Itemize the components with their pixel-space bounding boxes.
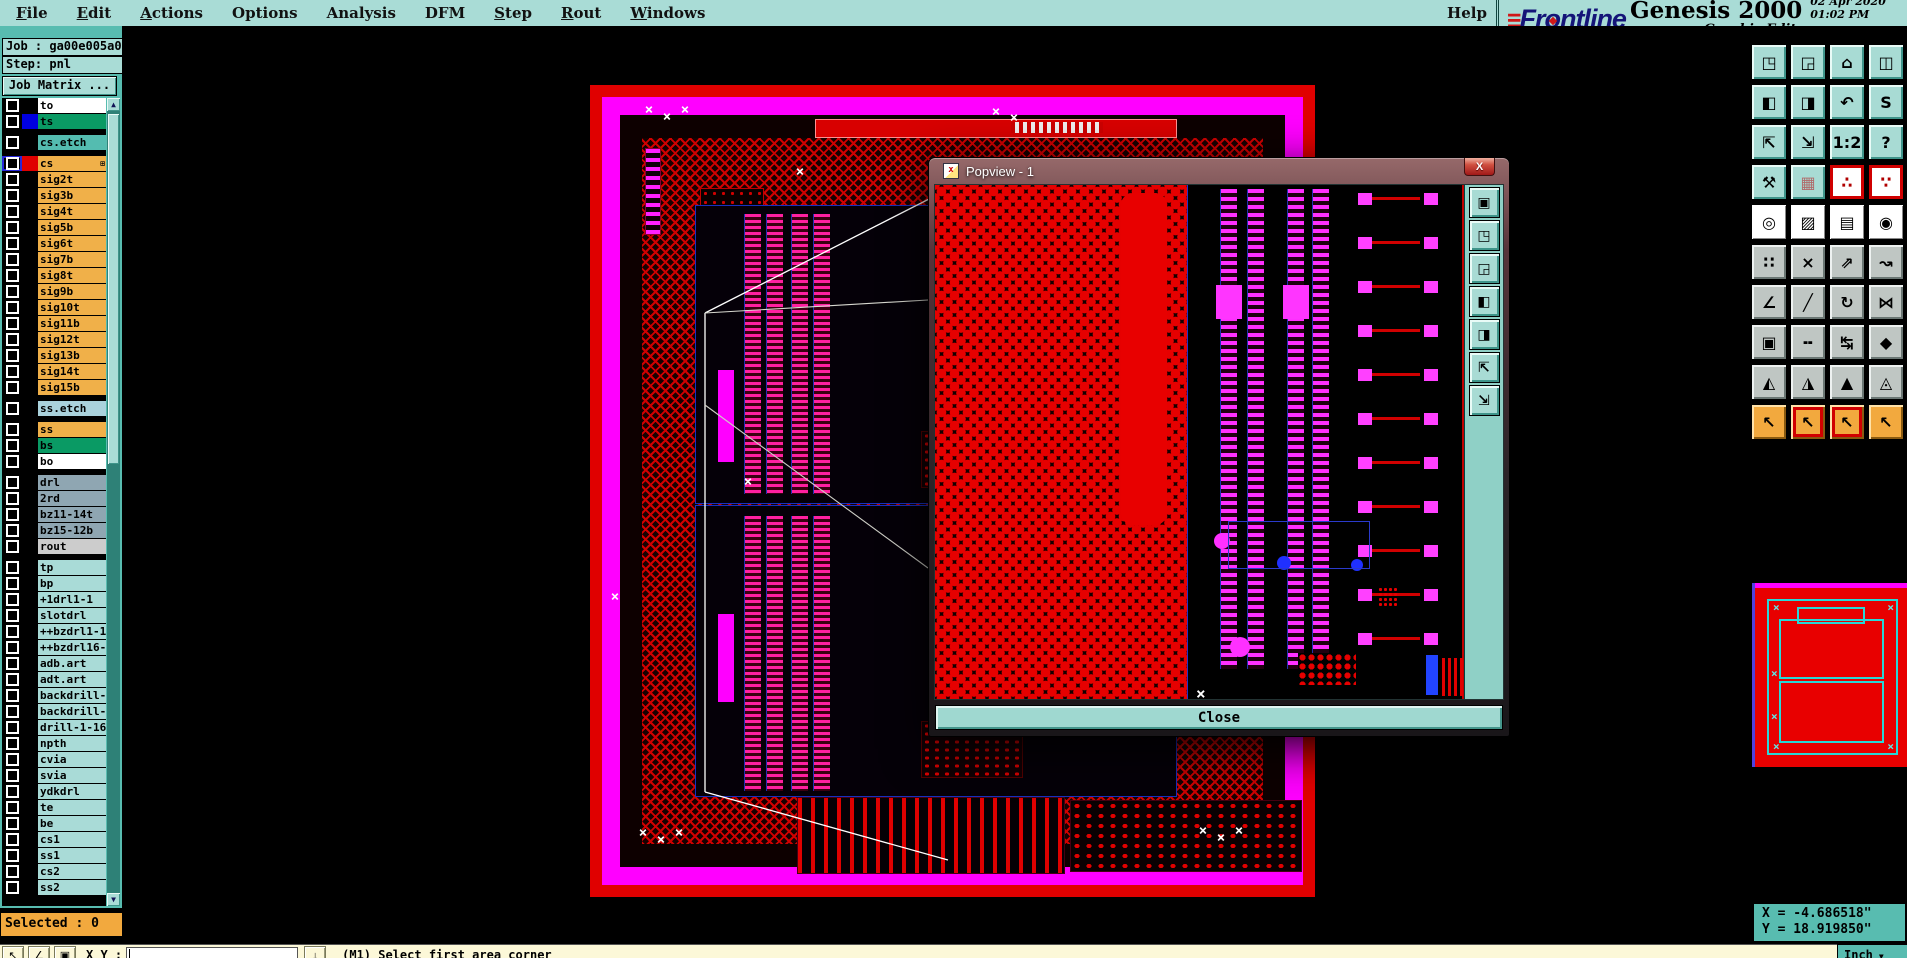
layer-visibility-checkbox[interactable] xyxy=(2,156,22,171)
layer-name-label[interactable]: cs.etch xyxy=(38,135,106,150)
coord-entry-button[interactable]: ↓ xyxy=(304,946,326,958)
layer-row[interactable]: sig13b xyxy=(2,348,106,363)
layer-name-label[interactable]: npth xyxy=(38,736,106,751)
layer-name-label[interactable]: sig10t xyxy=(38,300,106,315)
net-highlight-alt-button[interactable]: ∵ xyxy=(1868,164,1904,200)
layer-visibility-checkbox[interactable] xyxy=(2,864,22,879)
layer-visibility-checkbox[interactable] xyxy=(2,800,22,815)
layer-visibility-checkbox[interactable] xyxy=(2,832,22,847)
checkbox-icon xyxy=(6,333,19,346)
layer-color-swatch[interactable] xyxy=(22,454,38,469)
layer-visibility-checkbox[interactable] xyxy=(2,114,22,129)
layer-row[interactable]: sig4t xyxy=(2,204,106,219)
layer-row[interactable]: cs2 xyxy=(2,864,106,879)
layer-color-swatch[interactable] xyxy=(22,252,38,267)
layer-visibility-checkbox[interactable] xyxy=(2,507,22,522)
checkbox-icon xyxy=(6,237,19,250)
layer-color-swatch[interactable] xyxy=(22,704,38,719)
layer-name-label[interactable]: be xyxy=(38,816,106,831)
cursor-coordinates: X = -4.686518" Y = 18.919850" xyxy=(1752,904,1905,941)
layer-name-label[interactable]: ss1 xyxy=(38,848,106,863)
net-highlight-button[interactable]: ∴ xyxy=(1829,164,1865,200)
checkbox-icon xyxy=(6,476,19,489)
layer-panel: to ts cs.etch xyxy=(0,96,122,908)
layer-color-swatch[interactable] xyxy=(22,832,38,847)
layer-color-swatch[interactable] xyxy=(22,364,38,379)
layer-name-label[interactable]: backdrill-16 xyxy=(38,704,106,719)
layer-color-swatch[interactable] xyxy=(22,348,38,363)
checkbox-icon xyxy=(6,508,19,521)
layer-name-label[interactable]: te xyxy=(38,800,106,815)
layer-name-label[interactable]: sig3b xyxy=(38,188,106,203)
overview-map[interactable] xyxy=(1752,583,1907,767)
layer-name-label[interactable]: cs⊞ xyxy=(38,156,106,171)
layer-visibility-checkbox[interactable] xyxy=(2,624,22,639)
layer-name-label[interactable]: backdrill-1-1 xyxy=(38,688,106,703)
fiducial-cross-mark xyxy=(681,102,689,118)
fiducial-cross-mark xyxy=(645,102,653,118)
pan-right-button[interactable]: ◨ xyxy=(1790,84,1826,120)
select-symbol-button[interactable]: ◎ xyxy=(1751,204,1787,240)
layer-color-swatch[interactable] xyxy=(22,752,38,767)
layer-row[interactable]: cs1 xyxy=(2,832,106,847)
layer-visibility-checkbox[interactable] xyxy=(2,401,22,416)
layer-name-label[interactable]: bz15-12b xyxy=(38,523,106,538)
menu-item[interactable]: Rout xyxy=(561,4,601,22)
delete-object-button[interactable]: × xyxy=(1790,244,1826,280)
zoom-in-button[interactable]: ◳ xyxy=(1751,44,1787,80)
grid-toggle-button[interactable]: ▦ xyxy=(1790,164,1826,200)
layer-name-label[interactable]: sig13b xyxy=(38,348,106,363)
layer-name-label[interactable]: bs xyxy=(38,438,106,453)
layer-name-label[interactable]: ydkdrl xyxy=(38,784,106,799)
layer-row[interactable]: ++bzdrl1-13 xyxy=(2,624,106,639)
checkbox-icon xyxy=(6,492,19,505)
scroll-thumb[interactable] xyxy=(108,114,119,464)
layer-row[interactable]: bz15-12b xyxy=(2,523,106,538)
copy-pad-button[interactable]: ▣ xyxy=(1751,324,1787,360)
fiducial-cross-mark xyxy=(796,164,804,180)
popview-dot-grid-region xyxy=(935,185,1187,699)
ruler-button[interactable]: ▤ xyxy=(1829,204,1865,240)
layer-row[interactable]: sig5b xyxy=(2,220,106,235)
layer-row[interactable]: sig6t xyxy=(2,236,106,251)
layer-name-label[interactable]: rout xyxy=(38,539,106,554)
map-board-outline xyxy=(1779,619,1884,679)
layer-row[interactable]: rout xyxy=(2,539,106,554)
layer-color-swatch[interactable] xyxy=(22,491,38,506)
zoom-out-button[interactable]: ◲ xyxy=(1790,44,1826,80)
layer-color-swatch[interactable] xyxy=(22,784,38,799)
window-mode-button[interactable]: ▣ xyxy=(54,946,76,958)
query-button[interactable]: ? xyxy=(1868,124,1904,160)
layer-row[interactable]: be xyxy=(2,816,106,831)
layer-visibility-checkbox[interactable] xyxy=(2,784,22,799)
layer-color-swatch[interactable] xyxy=(22,507,38,522)
layer-row[interactable]: to xyxy=(2,98,106,113)
layer-name-label[interactable]: ++bzdrl16-13 xyxy=(38,640,106,655)
layer-visibility-checkbox[interactable] xyxy=(2,332,22,347)
snap-point-button[interactable]: ↝ xyxy=(1868,244,1904,280)
layer-row[interactable]: adb.art xyxy=(2,656,106,671)
layer-row[interactable]: 2rd xyxy=(2,491,106,506)
popview-close-icon[interactable]: X xyxy=(1464,158,1495,176)
layer-name-label[interactable]: sig14t xyxy=(38,364,106,379)
break-line-button[interactable]: ╍ xyxy=(1790,324,1826,360)
previous-view-button[interactable]: ↶ xyxy=(1829,84,1865,120)
checkbox-icon xyxy=(6,609,19,622)
slope-line-button[interactable]: ╱ xyxy=(1790,284,1826,320)
layer-visibility-checkbox[interactable] xyxy=(2,539,22,554)
layer-color-swatch[interactable] xyxy=(22,523,38,538)
layer-row[interactable]: sig10t xyxy=(2,300,106,315)
step-label: Step: pnl xyxy=(2,56,124,74)
layer-row[interactable]: bp xyxy=(2,576,106,591)
layer-row[interactable]: backdrill-1-1 xyxy=(2,688,106,703)
layer-name-label[interactable]: +1drl1-1 xyxy=(38,592,106,607)
layer-color-swatch[interactable] xyxy=(22,592,38,607)
layer-name-label[interactable]: sig9b xyxy=(38,284,106,299)
layer-visibility-checkbox[interactable] xyxy=(2,720,22,735)
select-pad-button[interactable]: ◉ xyxy=(1868,204,1904,240)
menu-item[interactable]: Edit xyxy=(77,4,112,22)
layer-color-swatch[interactable] xyxy=(22,768,38,783)
layer-color-swatch[interactable] xyxy=(22,624,38,639)
layer-name-label[interactable]: drill-1-16 xyxy=(38,720,106,735)
layer-name-label[interactable]: bp xyxy=(38,576,106,591)
checkbox-icon xyxy=(6,136,19,149)
popview-title-bar[interactable]: x Popview - 1 xyxy=(929,158,1509,184)
layer-row[interactable]: ++bzdrl16-13 xyxy=(2,640,106,655)
layer-color-swatch[interactable] xyxy=(22,114,38,129)
layer-color-swatch[interactable] xyxy=(22,98,38,113)
checkbox-icon xyxy=(6,524,19,537)
layer-row[interactable]: ss.etch xyxy=(2,401,106,416)
menu-item[interactable]: Analysis xyxy=(327,4,396,22)
layer-visibility-checkbox[interactable] xyxy=(2,454,22,469)
layer-row[interactable]: slotdrl xyxy=(2,608,106,623)
layer-name-label[interactable]: sig12t xyxy=(38,332,106,347)
pan-left-button[interactable]: ◧ xyxy=(1751,84,1787,120)
scroll-down-arrow[interactable]: ▼ xyxy=(107,893,120,906)
layer-visibility-checkbox[interactable] xyxy=(2,491,22,506)
layer-row[interactable]: cs.etch xyxy=(2,135,106,150)
layer-color-swatch[interactable] xyxy=(22,172,38,187)
layer-name-label[interactable]: tp xyxy=(38,560,106,575)
layer-row[interactable]: sig14t xyxy=(2,364,106,379)
frame-select-button[interactable]: ↖ xyxy=(1790,404,1826,440)
layer-color-swatch[interactable] xyxy=(22,816,38,831)
pcb-bottom-components xyxy=(797,797,1065,874)
selected-count-label: Selected : 0 xyxy=(0,912,126,937)
layer-name-label[interactable]: ++bzdrl1-13 xyxy=(38,624,106,639)
split-view-xy-button[interactable]: ◫ xyxy=(1868,44,1904,80)
layer-name-label[interactable]: sig11b xyxy=(38,316,106,331)
triangle-open-button[interactable]: ◭ xyxy=(1751,364,1787,400)
layer-color-swatch[interactable] xyxy=(22,135,38,150)
layer-color-swatch[interactable] xyxy=(22,156,38,171)
popview-zoom-extents-button[interactable]: ⇱ xyxy=(1469,352,1500,383)
layer-color-swatch[interactable] xyxy=(22,848,38,863)
popview-pan-right-button[interactable]: ◨ xyxy=(1469,319,1500,350)
layer-row[interactable]: cs⊞ xyxy=(2,156,106,171)
layer-color-swatch[interactable] xyxy=(22,204,38,219)
layer-visibility-checkbox[interactable] xyxy=(2,560,22,575)
layer-name-label[interactable]: ss xyxy=(38,422,106,437)
layer-color-swatch[interactable] xyxy=(22,608,38,623)
layer-visibility-checkbox[interactable] xyxy=(2,704,22,719)
layer-row[interactable]: bs xyxy=(2,438,106,453)
layer-name-label[interactable]: bo xyxy=(38,454,106,469)
layer-visibility-checkbox[interactable] xyxy=(2,576,22,591)
layer-visibility-checkbox[interactable] xyxy=(2,220,22,235)
layer-row[interactable]: ss xyxy=(2,422,106,437)
setup-tools-button[interactable]: ⚒ xyxy=(1751,164,1787,200)
job-matrix-button[interactable]: Job Matrix ... xyxy=(2,76,117,96)
layer-name-label[interactable]: slotdrl xyxy=(38,608,106,623)
layer-color-swatch[interactable] xyxy=(22,736,38,751)
menu-item[interactable]: File xyxy=(16,4,48,22)
popview-clone-button[interactable]: ▣ xyxy=(1469,187,1500,218)
layer-visibility-checkbox[interactable] xyxy=(2,284,22,299)
layer-color-swatch[interactable] xyxy=(22,640,38,655)
layer-name-label[interactable]: 2rd xyxy=(38,491,106,506)
layer-row[interactable]: sig12t xyxy=(2,332,106,347)
layer-visibility-checkbox[interactable] xyxy=(2,592,22,607)
layer-visibility-checkbox[interactable] xyxy=(2,364,22,379)
layer-color-swatch[interactable] xyxy=(22,800,38,815)
layer-color-swatch[interactable] xyxy=(22,300,38,315)
fiducial-cross-mark xyxy=(639,825,647,841)
layer-row[interactable]: sig9b xyxy=(2,284,106,299)
layer-name-label[interactable]: cvia xyxy=(38,752,106,767)
layer-name-label[interactable]: ss2 xyxy=(38,880,106,895)
select-mode-button[interactable]: ↖ xyxy=(1751,404,1787,440)
layer-row[interactable]: svia xyxy=(2,768,106,783)
layer-color-swatch[interactable] xyxy=(22,316,38,331)
layer-name-label[interactable]: sig5b xyxy=(38,220,106,235)
checkbox-icon xyxy=(6,577,19,590)
layer-row[interactable]: ss2 xyxy=(2,880,106,895)
layer-row[interactable]: bo xyxy=(2,454,106,469)
popview-zoom-center-button[interactable]: ⇲ xyxy=(1469,385,1500,416)
layer-name-label[interactable]: sig15b xyxy=(38,380,106,395)
triangle-wide-button[interactable]: ◬ xyxy=(1868,364,1904,400)
layer-visibility-checkbox[interactable] xyxy=(2,475,22,490)
layer-scrollbar[interactable]: ▲ ▼ xyxy=(107,98,120,906)
layer-visibility-checkbox[interactable] xyxy=(2,688,22,703)
popview-viewport[interactable]: ▣ ◳ ◲ ◧ ◨ ⇱ ⇲ xyxy=(934,184,1504,700)
layer-visibility-checkbox[interactable] xyxy=(2,752,22,767)
layer-visibility-checkbox[interactable] xyxy=(2,848,22,863)
menu-item[interactable]: Actions xyxy=(140,4,203,22)
layer-name-label[interactable]: sig4t xyxy=(38,204,106,219)
layer-visibility-checkbox[interactable] xyxy=(2,252,22,267)
layer-row[interactable]: sig8t xyxy=(2,268,106,283)
layer-visibility-checkbox[interactable] xyxy=(2,608,22,623)
zoom-extents-button[interactable]: ⇱ xyxy=(1751,124,1787,160)
layer-row[interactable]: adt.art xyxy=(2,672,106,687)
layer-visibility-checkbox[interactable] xyxy=(2,135,22,150)
mirror-tool-button[interactable]: ⋈ xyxy=(1868,284,1904,320)
checkbox-icon xyxy=(6,721,19,734)
layer-visibility-checkbox[interactable] xyxy=(2,236,22,251)
connect-points-button[interactable]: ∷ xyxy=(1751,244,1787,280)
fiducial-cross-mark xyxy=(657,832,665,848)
layer-color-swatch[interactable] xyxy=(22,576,38,591)
layer-name-label[interactable]: ss.etch xyxy=(38,401,106,416)
layer-color-swatch[interactable] xyxy=(22,236,38,251)
layer-color-swatch[interactable] xyxy=(22,880,38,895)
layer-visibility-checkbox[interactable] xyxy=(2,98,22,113)
menu-item-help[interactable]: Help xyxy=(1447,4,1487,22)
layer-color-swatch[interactable] xyxy=(22,656,38,671)
layer-visibility-checkbox[interactable] xyxy=(2,640,22,655)
popview-zoom-out-button[interactable]: ◲ xyxy=(1469,253,1500,284)
layer-color-swatch[interactable] xyxy=(22,284,38,299)
layer-row[interactable]: sig11b xyxy=(2,316,106,331)
pointer-mode-button[interactable]: ↖ xyxy=(2,946,24,958)
layer-visibility-checkbox[interactable] xyxy=(2,316,22,331)
layer-name-label[interactable]: sig2t xyxy=(38,172,106,187)
layer-name-label[interactable]: svia xyxy=(38,768,106,783)
polygon-select-button[interactable]: ↖ xyxy=(1829,404,1865,440)
layer-visibility-checkbox[interactable] xyxy=(2,204,22,219)
layer-name-label[interactable]: adt.art xyxy=(38,672,106,687)
layer-visibility-checkbox[interactable] xyxy=(2,656,22,671)
layer-visibility-checkbox[interactable] xyxy=(2,523,22,538)
layer-visibility-checkbox[interactable] xyxy=(2,816,22,831)
layer-color-swatch[interactable] xyxy=(22,401,38,416)
layer-visibility-checkbox[interactable] xyxy=(2,768,22,783)
layer-row[interactable]: cvia xyxy=(2,752,106,767)
units-dropdown[interactable]: Inch xyxy=(1837,944,1907,958)
layer-name-label[interactable]: sig6t xyxy=(38,236,106,251)
triangle-filled-button[interactable]: ▲ xyxy=(1829,364,1865,400)
popview-zoom-in-button[interactable]: ◳ xyxy=(1469,220,1500,251)
layer-visibility-checkbox[interactable] xyxy=(2,422,22,437)
layer-row[interactable]: drill-1-16 xyxy=(2,720,106,735)
s-route-button[interactable]: S xyxy=(1868,84,1904,120)
coordinate-input[interactable] xyxy=(126,947,298,958)
layer-color-swatch[interactable] xyxy=(22,220,38,235)
measure-distance-button[interactable]: ↹ xyxy=(1829,324,1865,360)
checkbox-icon xyxy=(6,785,19,798)
layer-color-swatch[interactable] xyxy=(22,268,38,283)
layer-color-swatch[interactable] xyxy=(22,188,38,203)
layer-row[interactable]: drl xyxy=(2,475,106,490)
checkbox-icon xyxy=(6,753,19,766)
crosshair-cursor xyxy=(1196,684,1206,703)
layer-row[interactable]: sig2t xyxy=(2,172,106,187)
layer-row[interactable]: backdrill-16 xyxy=(2,704,106,719)
triangle-outline-button[interactable]: ◮ xyxy=(1790,364,1826,400)
layer-name-label[interactable]: adb.art xyxy=(38,656,106,671)
layer-color-swatch[interactable] xyxy=(22,332,38,347)
layer-visibility-checkbox[interactable] xyxy=(2,438,22,453)
menu-item[interactable]: Options xyxy=(232,4,298,22)
layer-visibility-checkbox[interactable] xyxy=(2,348,22,363)
menu-item[interactable]: DFM xyxy=(425,4,465,22)
layer-visibility-checkbox[interactable] xyxy=(2,880,22,895)
home-view-button[interactable]: ⌂ xyxy=(1829,44,1865,80)
checkbox-icon xyxy=(6,157,19,170)
layer-visibility-checkbox[interactable] xyxy=(2,172,22,187)
point-to-point-button[interactable]: ⇗ xyxy=(1829,244,1865,280)
angle-mode-button[interactable]: ∠ xyxy=(28,946,50,958)
layer-visibility-checkbox[interactable] xyxy=(2,672,22,687)
layer-color-swatch[interactable] xyxy=(22,539,38,554)
layer-row[interactable]: ydkdrl xyxy=(2,784,106,799)
popview-close-button[interactable]: Close xyxy=(935,705,1503,730)
layer-row[interactable]: npth xyxy=(2,736,106,751)
scroll-up-arrow[interactable]: ▲ xyxy=(107,98,120,111)
popview-copper-bar xyxy=(1121,193,1167,525)
layer-color-swatch[interactable] xyxy=(22,380,38,395)
popview-window[interactable]: x Popview - 1 X xyxy=(928,157,1510,737)
layer-name-label[interactable]: sig8t xyxy=(38,268,106,283)
layer-color-swatch[interactable] xyxy=(22,475,38,490)
map-frame-strip xyxy=(1755,583,1907,588)
layer-color-swatch[interactable] xyxy=(22,560,38,575)
layer-row[interactable]: ts xyxy=(2,114,106,129)
layer-color-swatch[interactable] xyxy=(22,864,38,879)
layer-color-swatch[interactable] xyxy=(22,422,38,437)
layer-visibility-checkbox[interactable] xyxy=(2,268,22,283)
layer-color-swatch[interactable] xyxy=(22,672,38,687)
layer-name-label[interactable]: cs2 xyxy=(38,864,106,879)
checkbox-icon xyxy=(6,689,19,702)
scale-1-2-button[interactable]: 1:2 xyxy=(1829,124,1865,160)
layer-visibility-checkbox[interactable] xyxy=(2,736,22,751)
fiducial-cross-mark xyxy=(663,109,671,125)
layer-color-swatch[interactable] xyxy=(22,438,38,453)
layer-name-label[interactable]: bz11-14t xyxy=(38,507,106,522)
angle-tool-button[interactable]: ∠ xyxy=(1751,284,1787,320)
checkbox-icon xyxy=(6,673,19,686)
layer-row[interactable]: sig7b xyxy=(2,252,106,267)
layer-name-label[interactable]: to xyxy=(38,98,106,113)
checkbox-icon xyxy=(6,769,19,782)
layer-name-label[interactable]: cs1 xyxy=(38,832,106,847)
layer-name-label[interactable]: drl xyxy=(38,475,106,490)
reshape-symbol-button[interactable]: ▨ xyxy=(1790,204,1826,240)
layer-visibility-checkbox[interactable] xyxy=(2,300,22,315)
layer-row[interactable]: +1drl1-1 xyxy=(2,592,106,607)
layer-row[interactable]: sig15b xyxy=(2,380,106,395)
merge-shapes-button[interactable]: ◆ xyxy=(1868,324,1904,360)
rotate-tool-button[interactable]: ↻ xyxy=(1829,284,1865,320)
menu-item[interactable]: Windows xyxy=(630,4,705,22)
layer-color-swatch[interactable] xyxy=(22,688,38,703)
popview-pan-left-button[interactable]: ◧ xyxy=(1469,286,1500,317)
zoom-center-button[interactable]: ⇲ xyxy=(1790,124,1826,160)
layer-visibility-checkbox[interactable] xyxy=(2,380,22,395)
units-dropdown-arrow-icon[interactable] xyxy=(1879,948,1884,958)
layer-visibility-checkbox[interactable] xyxy=(2,188,22,203)
layer-row[interactable]: sig3b xyxy=(2,188,106,203)
layer-row[interactable]: bz11-14t xyxy=(2,507,106,522)
net-select-button[interactable]: ↖ xyxy=(1868,404,1904,440)
menu-item[interactable]: Step xyxy=(494,4,532,22)
layer-row[interactable]: ss1 xyxy=(2,848,106,863)
layer-color-swatch[interactable] xyxy=(22,720,38,735)
layer-row[interactable]: te xyxy=(2,800,106,815)
layer-name-label[interactable]: ts xyxy=(38,114,106,129)
fiducial-cross-mark xyxy=(1010,110,1018,126)
layer-row[interactable]: tp xyxy=(2,560,106,575)
layer-name-label[interactable]: sig7b xyxy=(38,252,106,267)
